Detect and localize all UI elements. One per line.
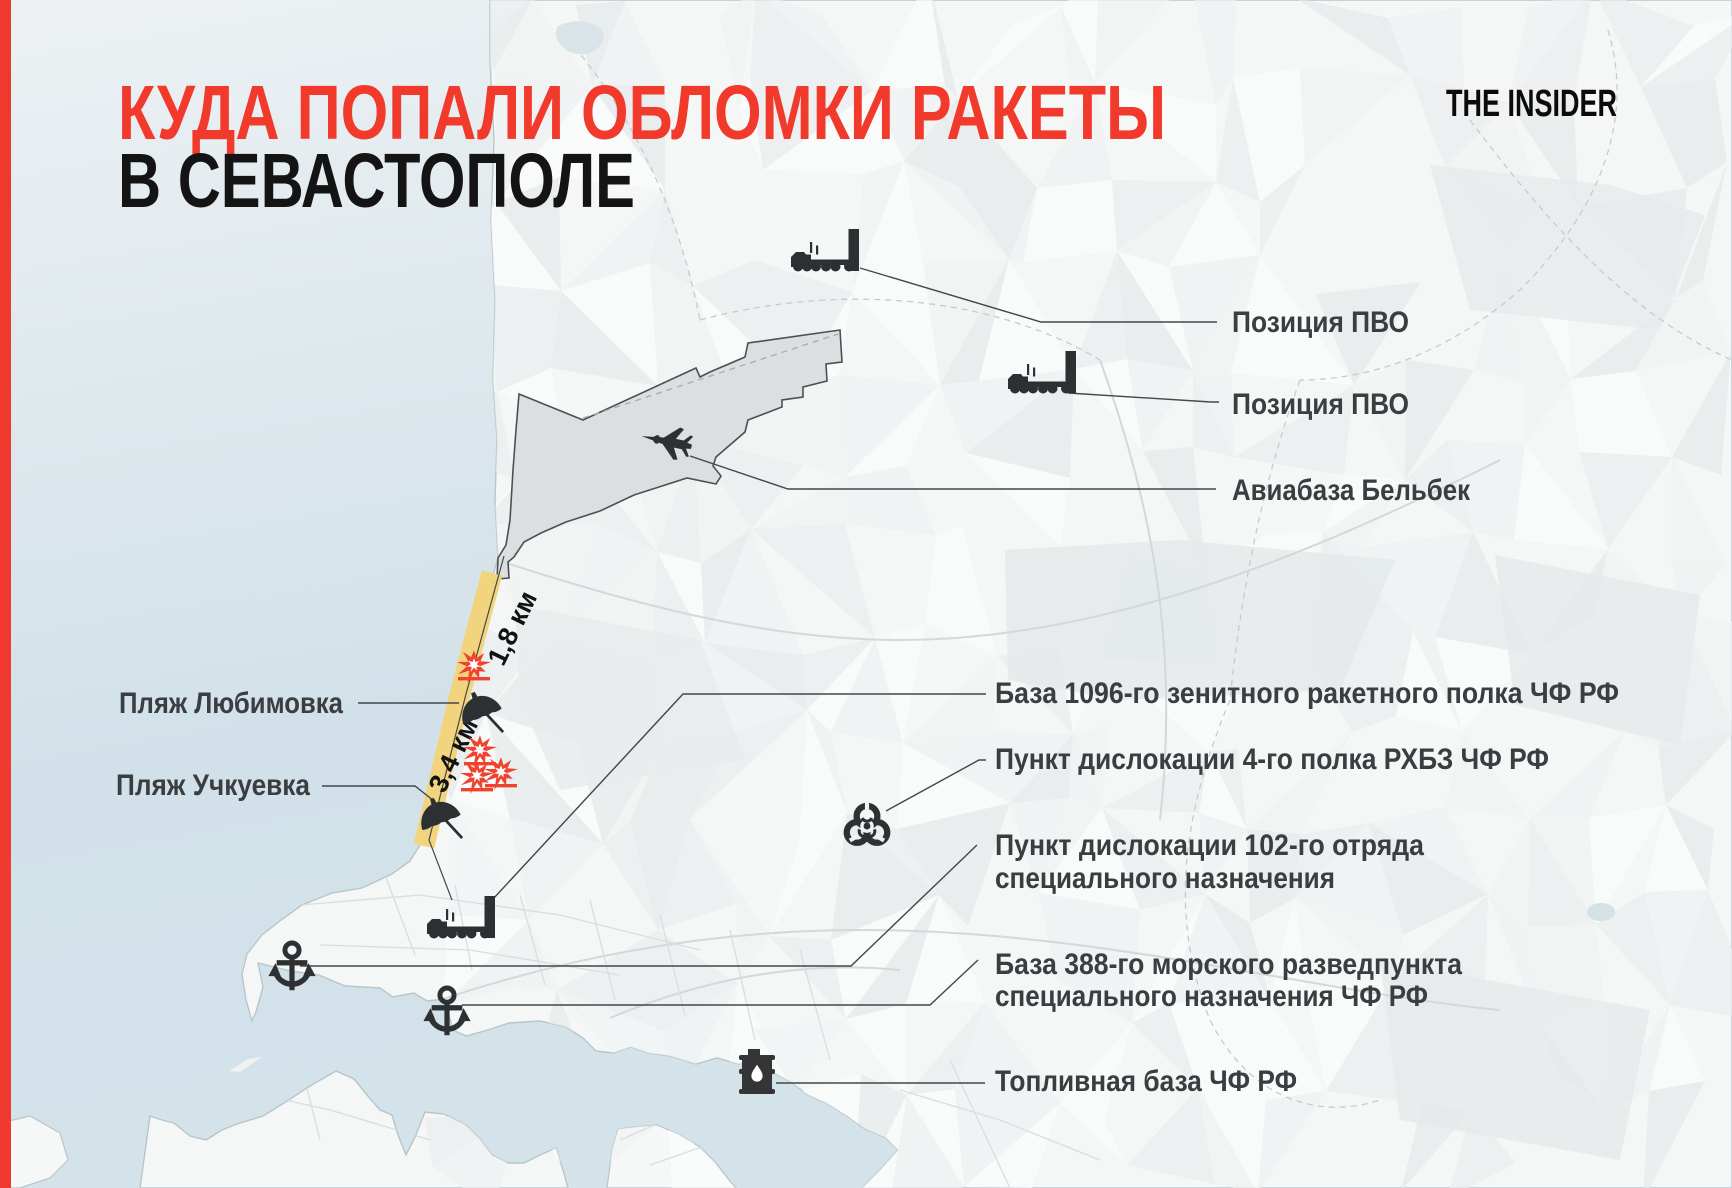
svg-text:Позиция ПВО: Позиция ПВО <box>1232 306 1409 339</box>
svg-text:Авиабаза Бельбек: Авиабаза Бельбек <box>1232 474 1471 507</box>
svg-text:Пункт дислокации 4-го полка РХ: Пункт дислокации 4-го полка РХБЗ ЧФ РФ <box>995 743 1549 776</box>
svg-text:Позиция ПВО: Позиция ПВО <box>1232 388 1409 421</box>
svg-text:Топливная база ЧФ РФ: Топливная база ЧФ РФ <box>995 1065 1297 1098</box>
svg-text:База 388-го морского разведпун: База 388-го морского разведпункта <box>995 948 1462 981</box>
svg-text:В СЕВАСТОПОЛЕ: В СЕВАСТОПОЛЕ <box>118 138 635 224</box>
svg-text:Пляж Любимовка: Пляж Любимовка <box>119 687 343 720</box>
svg-text:THE INSIDER: THE INSIDER <box>1446 83 1617 125</box>
svg-text:Пляж Учкуевка: Пляж Учкуевка <box>116 769 310 802</box>
svg-text:База 1096-го зенитного ракетно: База 1096-го зенитного ракетного полка Ч… <box>995 677 1619 710</box>
svg-text:Пункт дислокации 102-го отряда: Пункт дислокации 102-го отряда <box>995 829 1424 862</box>
svg-text:специального назначения: специального назначения <box>995 862 1335 895</box>
svg-text:специального назначения ЧФ РФ: специального назначения ЧФ РФ <box>995 980 1428 1013</box>
